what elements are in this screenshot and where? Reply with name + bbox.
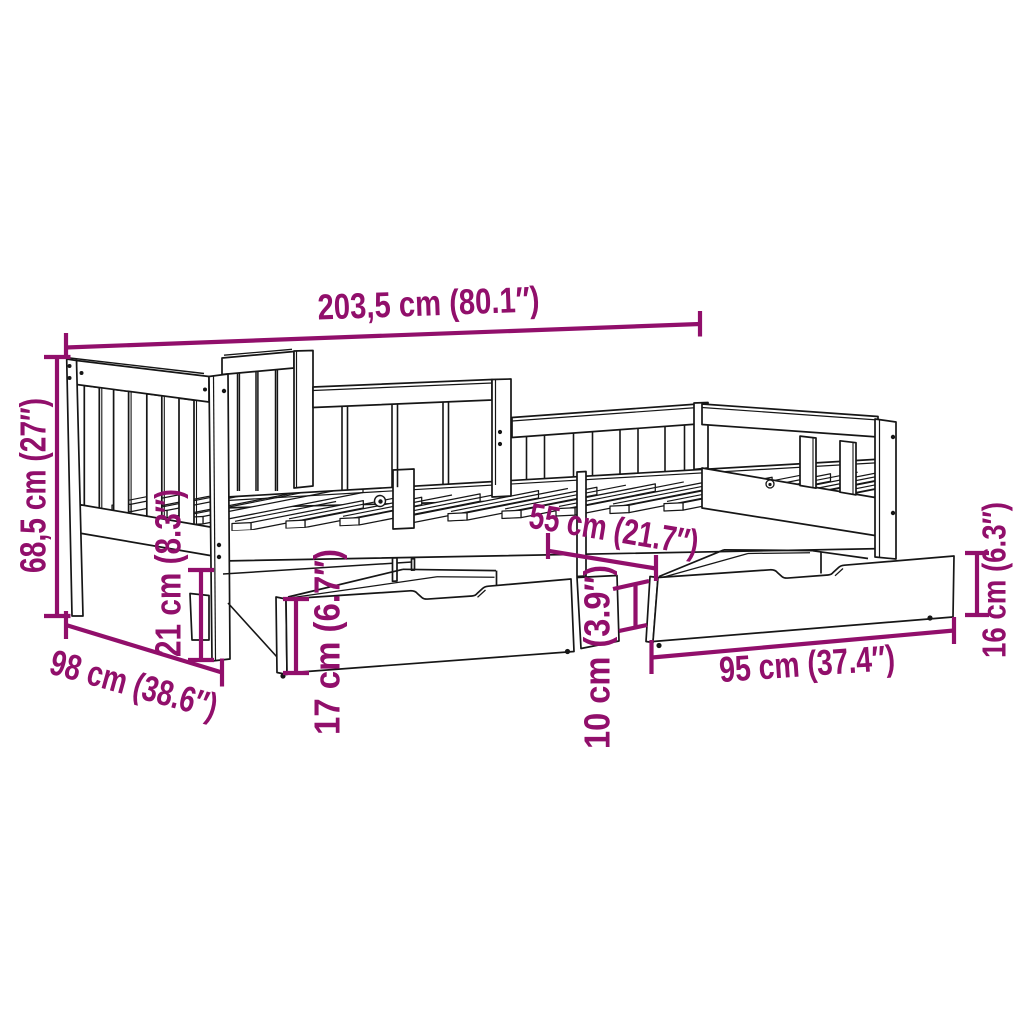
svg-text:16 cm (6.3″): 16 cm (6.3″) xyxy=(976,502,1013,658)
svg-text:68,5 cm (27″): 68,5 cm (27″) xyxy=(13,398,54,573)
svg-text:10 cm (3.9″): 10 cm (3.9″) xyxy=(577,565,618,749)
svg-text:17 cm (6.7″): 17 cm (6.7″) xyxy=(307,549,348,735)
svg-text:203,5 cm (80.1″): 203,5 cm (80.1″) xyxy=(317,278,540,327)
svg-text:21 cm (8.3″): 21 cm (8.3″) xyxy=(148,489,189,657)
